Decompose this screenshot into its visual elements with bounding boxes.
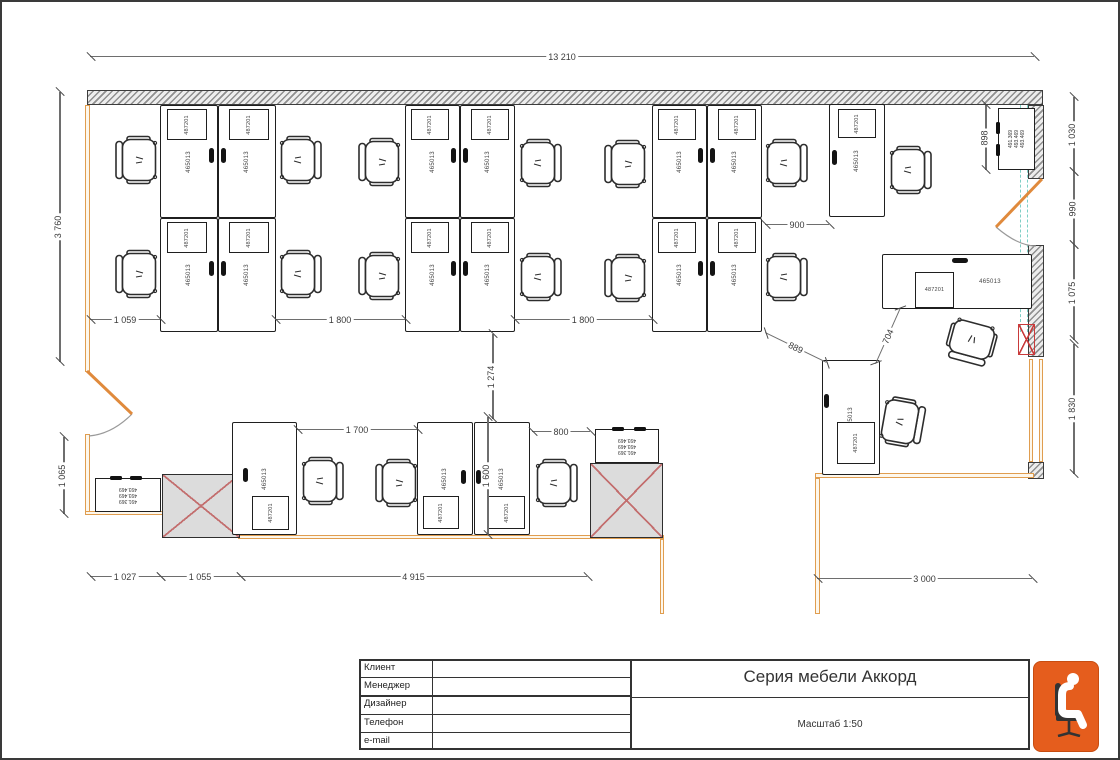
dimension-text: 1 600 xyxy=(481,463,491,490)
dimension-text: 704 xyxy=(880,326,897,347)
dimension-text: 1 274 xyxy=(486,363,496,390)
dimension-text: 3 760 xyxy=(53,214,63,241)
wall-partition xyxy=(85,105,90,372)
dimension-text: 1 800 xyxy=(570,315,597,325)
pedestal-label: 487201 xyxy=(487,228,493,248)
pedestal-label: 487201 xyxy=(487,115,493,135)
cabinet-label: 491.369493.469493.469 xyxy=(119,486,137,504)
cable-grommet xyxy=(698,148,703,163)
cable-grommet xyxy=(209,148,214,163)
dimension-text: 990 xyxy=(1067,199,1077,218)
office-chair-icon xyxy=(762,138,809,188)
desk-label: 465013 xyxy=(485,151,491,173)
dimension: 704 xyxy=(871,307,906,367)
designer-label: Дизайнер xyxy=(359,695,432,713)
manager-label: Менеджер xyxy=(359,677,432,695)
office-chair-icon xyxy=(374,458,421,508)
dimension: 1 075 xyxy=(1068,245,1080,340)
dimension: 1 027 xyxy=(90,571,160,583)
dimension-text: 1 059 xyxy=(112,315,139,325)
desk-label: 465013 xyxy=(186,151,192,173)
office-chair-icon xyxy=(762,252,809,302)
wall-partition xyxy=(660,539,664,614)
structural-column xyxy=(590,463,663,538)
drawing-title: Серия мебели Аккорд xyxy=(630,667,1030,687)
dimension: 1 800 xyxy=(275,314,405,326)
dimension-text: 3 000 xyxy=(911,574,938,584)
client-label: Клиент xyxy=(359,659,432,677)
dimension-text: 1 830 xyxy=(1067,396,1077,423)
dimension: 3 000 xyxy=(817,573,1032,585)
dimension-text: 889 xyxy=(785,339,806,356)
office-chair-icon xyxy=(532,458,579,508)
desk-label: 465013 xyxy=(485,264,491,286)
cable-grommet xyxy=(710,261,715,276)
brand-logo xyxy=(1033,661,1099,752)
dimension: 1 800 xyxy=(514,314,652,326)
title-scale-divider xyxy=(630,697,1030,698)
office-chair-icon xyxy=(357,137,404,187)
office-chair-icon xyxy=(886,145,933,195)
riser-marker xyxy=(1018,324,1035,355)
wall-partition xyxy=(85,434,90,514)
cable-grommet xyxy=(209,261,214,276)
dimension-text: 1 075 xyxy=(1067,279,1077,306)
dimension: 898 xyxy=(980,105,992,170)
office-chair-icon xyxy=(603,139,650,189)
dimension: 900 xyxy=(765,219,829,231)
floor-plan-page: 4650134872014650134872014650134872014650… xyxy=(0,0,1120,760)
pedestal-label: 487201 xyxy=(246,228,252,248)
cable-grommet xyxy=(698,261,703,276)
cable-grommet xyxy=(832,150,837,165)
office-chair-icon xyxy=(603,253,650,303)
cabinet-handle xyxy=(634,427,646,431)
desk-label: 465013 xyxy=(732,151,738,173)
desk-label: 465013 xyxy=(677,264,683,286)
cable-grommet xyxy=(952,258,968,263)
door-swing xyxy=(82,368,138,445)
office-chair-icon xyxy=(874,393,929,450)
cable-grommet xyxy=(461,470,466,484)
pedestal-label: 487201 xyxy=(427,228,433,248)
office-chair-icon xyxy=(276,249,323,299)
cabinet-handle xyxy=(130,476,142,480)
drawing-scale: Масштаб 1:50 xyxy=(630,719,1030,730)
dimension-text: 1 055 xyxy=(187,572,214,582)
cabinet-handle xyxy=(996,122,1000,134)
cabinet-handle xyxy=(110,476,122,480)
pedestal-label: 487201 xyxy=(734,228,740,248)
dimension-text: 1 027 xyxy=(112,572,139,582)
door-swing xyxy=(988,175,1046,254)
email-value xyxy=(433,732,630,750)
dimension: 1 600 xyxy=(482,417,494,535)
desk-label: 465013 xyxy=(430,264,436,286)
office-chair-icon xyxy=(298,456,345,506)
designer-value xyxy=(433,695,630,713)
dimension: 1 065 xyxy=(58,437,70,514)
floor-plan: 4650134872014650134872014650134872014650… xyxy=(2,2,1120,760)
dimension: 13 210 xyxy=(90,51,1034,63)
dimension-text: 1 800 xyxy=(327,315,354,325)
desk-label: 465013 xyxy=(430,151,436,173)
dimension-text: 1 030 xyxy=(1067,121,1077,148)
pedestal-label: 487201 xyxy=(184,228,190,248)
email-label: e-mail xyxy=(359,732,432,750)
dimension-text: 1 700 xyxy=(344,425,371,435)
dimension: 889 xyxy=(762,328,828,369)
dimension: 3 760 xyxy=(54,92,66,362)
cabinet-handle xyxy=(996,144,1000,156)
pedestal-label: 487201 xyxy=(854,114,860,134)
pedestal-label: 487201 xyxy=(674,115,680,135)
cable-grommet xyxy=(451,261,456,276)
desk-label: 465013 xyxy=(677,151,683,173)
office-chair-icon xyxy=(941,312,1001,370)
dimension: 1 055 xyxy=(160,571,240,583)
cable-grommet xyxy=(463,148,468,163)
dimension: 4 915 xyxy=(240,571,587,583)
structural-column xyxy=(162,474,240,538)
pedestal-label: 487201 xyxy=(674,228,680,248)
cable-grommet xyxy=(710,148,715,163)
cabinet-label: 491.369493.469493.469 xyxy=(618,437,636,455)
desk-label: 465013 xyxy=(262,468,268,490)
office-chair-icon xyxy=(357,251,404,301)
dimension-text: 13 210 xyxy=(546,52,578,62)
pedestal-label: 487201 xyxy=(853,433,859,453)
dimension: 990 xyxy=(1068,172,1080,245)
manager-value xyxy=(433,677,630,695)
dimension: 1 274 xyxy=(487,334,499,419)
wall-partition xyxy=(1029,359,1033,462)
pedestal-label: 487201 xyxy=(734,115,740,135)
pedestal-label: 487201 xyxy=(427,115,433,135)
desk-label: 465013 xyxy=(732,264,738,286)
cable-grommet xyxy=(221,148,226,163)
cable-grommet xyxy=(243,468,248,482)
pedestal-label: 487201 xyxy=(925,287,945,293)
desk-label: 465013 xyxy=(979,279,1001,285)
desk-label: 465013 xyxy=(442,468,448,490)
dimension-text: 1 065 xyxy=(57,462,67,489)
cable-grommet xyxy=(463,261,468,276)
dimension: 1 830 xyxy=(1068,344,1080,474)
pedestal-label: 487201 xyxy=(438,503,444,523)
dimension: 800 xyxy=(532,426,590,438)
pedestal-label: 487201 xyxy=(268,503,274,523)
person-on-chair-icon xyxy=(1043,671,1089,742)
desk-label: 465013 xyxy=(244,264,250,286)
pedestal-label: 487201 xyxy=(184,115,190,135)
dimension: 1 700 xyxy=(297,424,417,436)
office-chair-icon xyxy=(516,138,563,188)
cabinet-handle xyxy=(612,427,624,431)
client-value xyxy=(433,659,630,677)
cabinet-label: 491.369493.469493.469 xyxy=(1008,130,1026,148)
title-block: Клиент Менеджер Дизайнер Телефон e-mail … xyxy=(359,659,1030,750)
wall-partition xyxy=(1039,359,1043,462)
desk-label: 465013 xyxy=(854,150,860,172)
wall-partition xyxy=(815,478,820,614)
desk-label: 465013 xyxy=(244,151,250,173)
dimension: 1 059 xyxy=(90,314,160,326)
desk-label: 465013 xyxy=(499,468,505,490)
pedestal-label: 487201 xyxy=(246,115,252,135)
dimension-text: 898 xyxy=(979,128,989,147)
dimension-text: 900 xyxy=(787,220,806,230)
desk-label: 465013 xyxy=(186,264,192,286)
office-chair-icon xyxy=(276,135,323,185)
cable-grommet xyxy=(221,261,226,276)
wall-hatched xyxy=(87,90,1043,105)
pedestal-label: 487201 xyxy=(504,503,510,523)
cable-grommet xyxy=(451,148,456,163)
office-chair-icon xyxy=(516,252,563,302)
dimension: 1 030 xyxy=(1068,97,1080,172)
office-chair-icon xyxy=(114,249,161,299)
phone-value xyxy=(433,714,630,732)
phone-label: Телефон xyxy=(359,714,432,732)
dimension-text: 800 xyxy=(551,427,570,437)
dimension-text: 4 915 xyxy=(400,572,427,582)
office-chair-icon xyxy=(114,135,161,185)
cable-grommet xyxy=(824,394,829,408)
